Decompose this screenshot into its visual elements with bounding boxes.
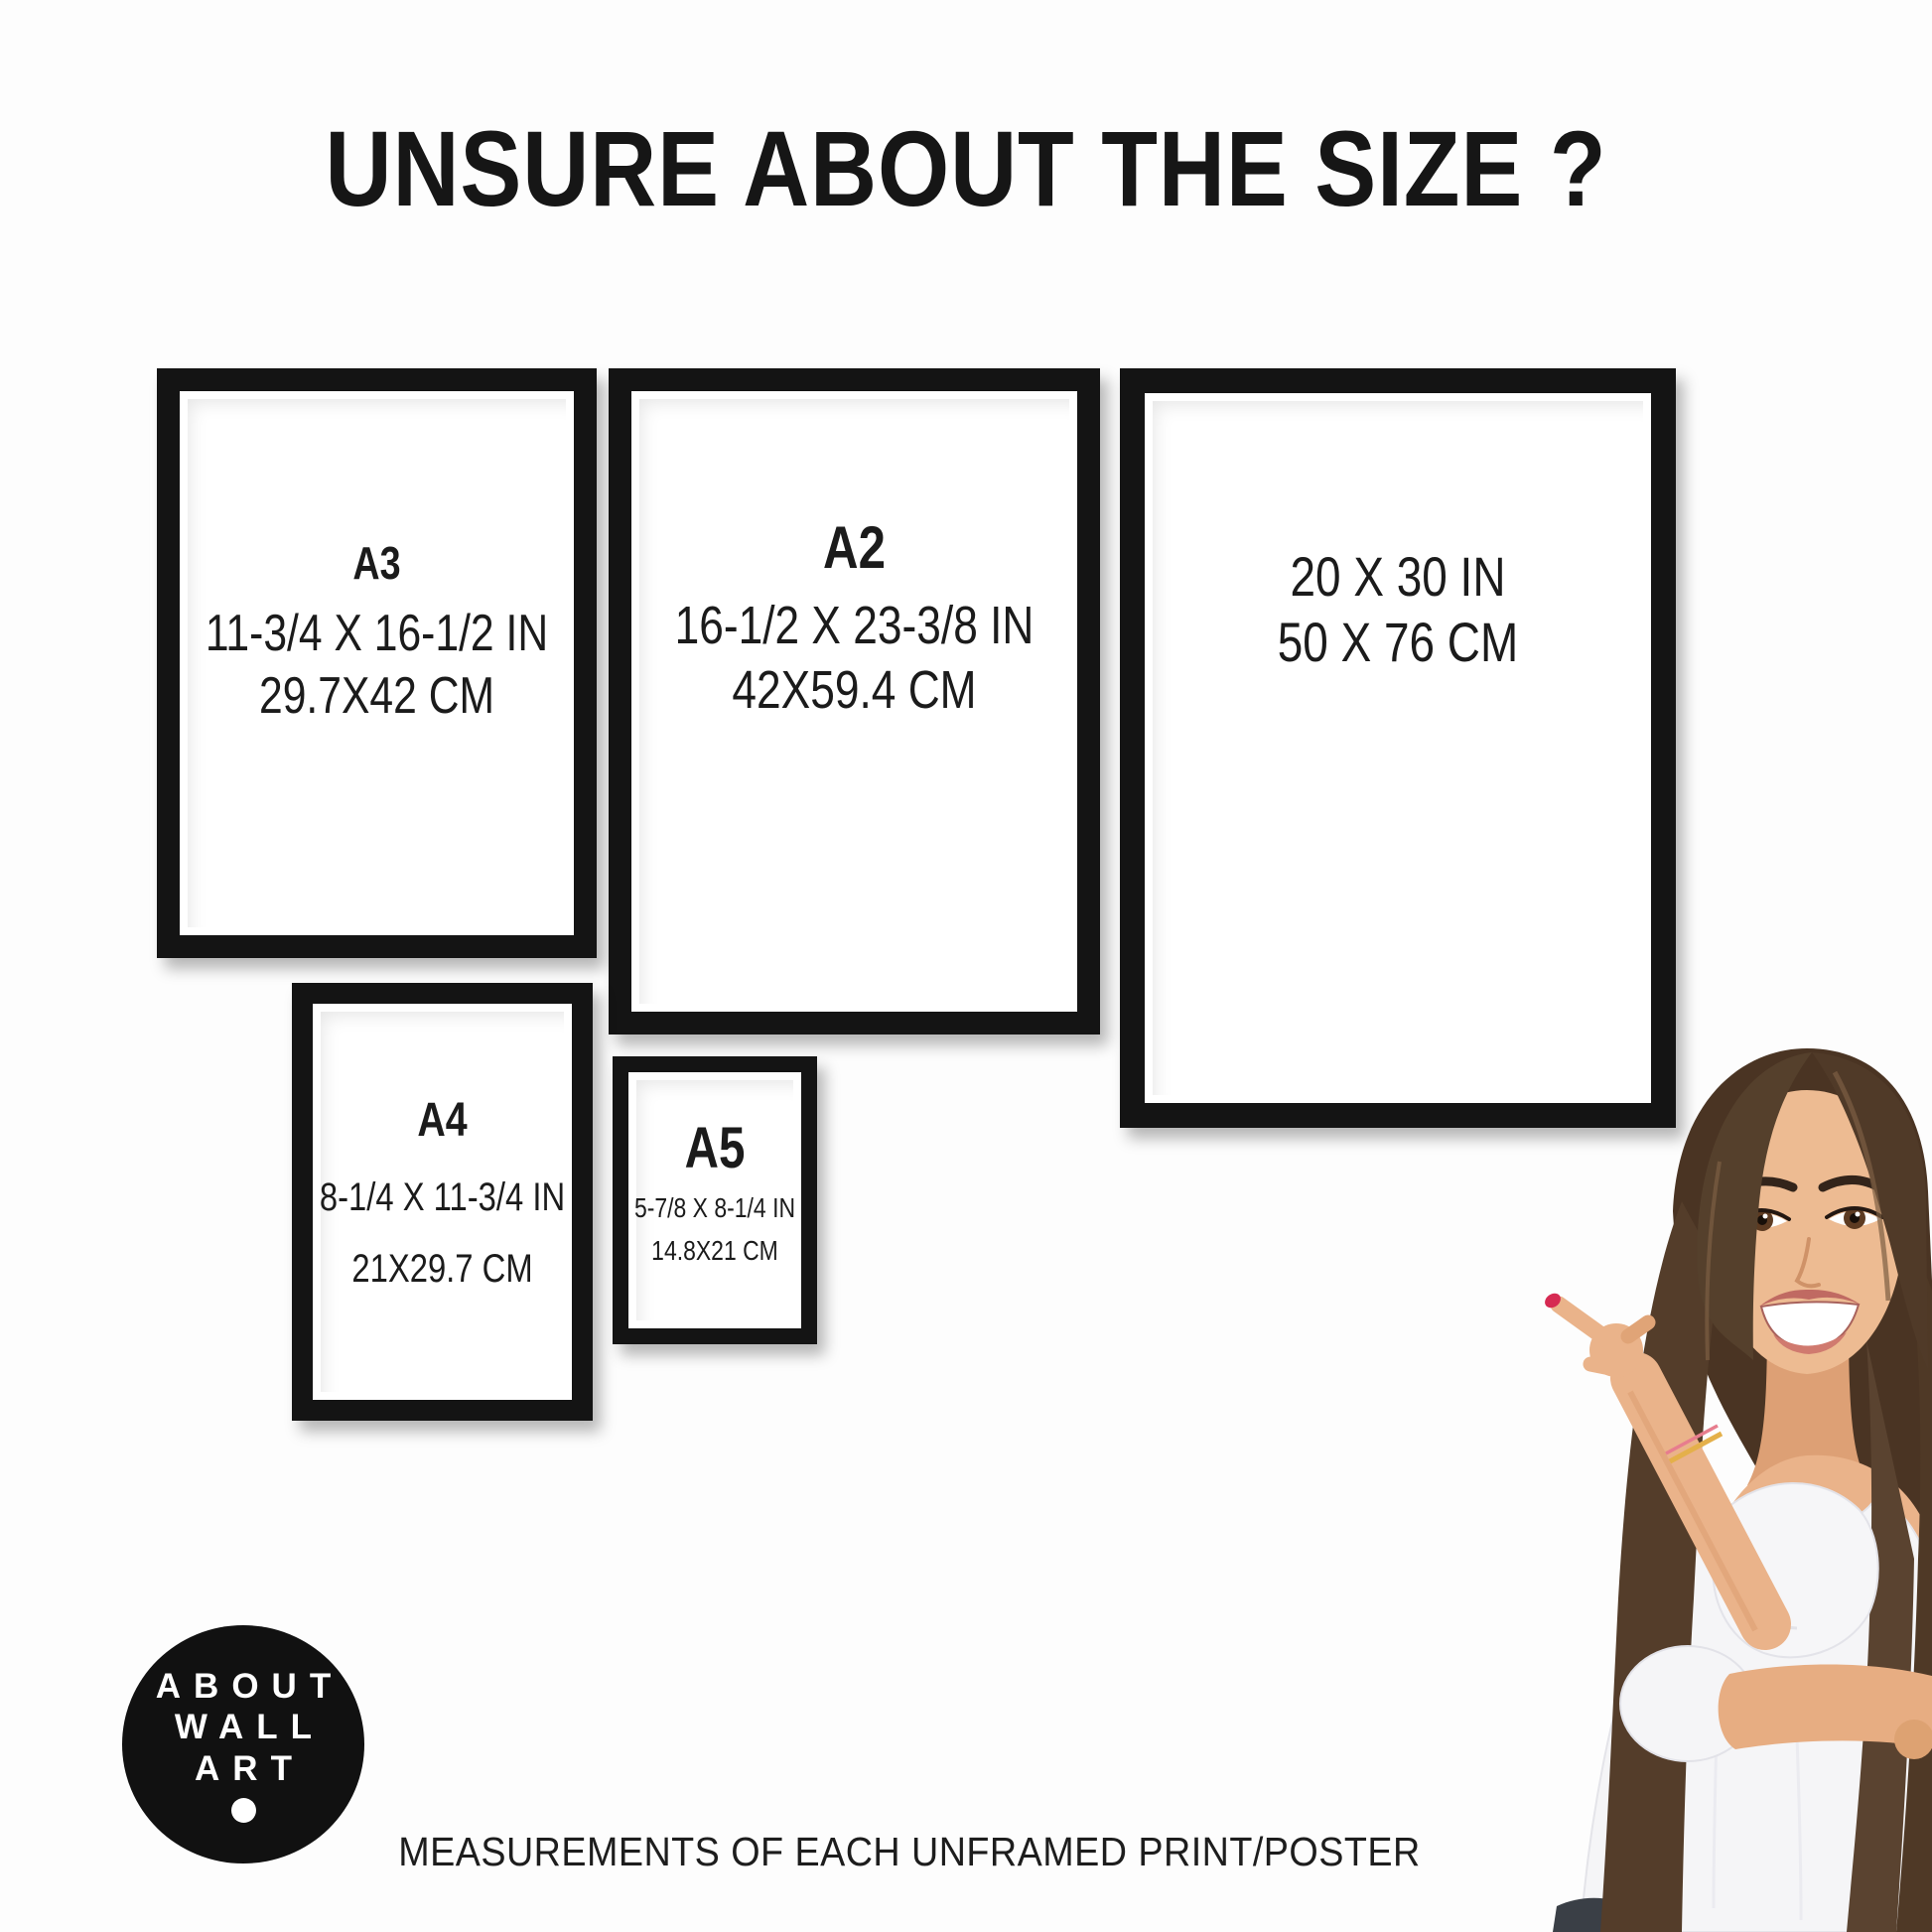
size-inches: 20 X 30 IN bbox=[1170, 544, 1625, 610]
size-frame-20x30 bbox=[1120, 368, 1676, 1128]
footer-caption: MEASUREMENTS OF EACH UNFRAMED PRINT/POST… bbox=[398, 1832, 1385, 1872]
logo-dot-icon bbox=[231, 1798, 256, 1823]
size-inches: 8-1/4 X 11-3/4 IN bbox=[319, 1173, 565, 1221]
woman-pointing-photo bbox=[1469, 1042, 1932, 1932]
size-text-a3: A3 11-3/4 X 16-1/2 IN 29.7X42 CM bbox=[197, 536, 557, 727]
size-label: A2 bbox=[653, 512, 1056, 584]
size-text-a4: A4 8-1/4 X 11-3/4 IN 21X29.7 CM bbox=[319, 1092, 565, 1293]
size-inches: 11-3/4 X 16-1/2 IN bbox=[197, 603, 557, 664]
size-cm: 29.7X42 CM bbox=[197, 665, 557, 727]
size-cm: 21X29.7 CM bbox=[319, 1245, 565, 1293]
size-label: A3 bbox=[197, 536, 557, 591]
size-text-20x30: 20 X 30 IN 50 X 76 CM bbox=[1170, 544, 1625, 675]
logo-text-line: ART bbox=[182, 1748, 305, 1789]
page-title: UNSURE ABOUT THE SIZE ? bbox=[135, 115, 1797, 222]
size-cm: 42X59.4 CM bbox=[653, 658, 1056, 723]
size-cm: 14.8X21 CM bbox=[631, 1234, 799, 1268]
about-wall-art-logo: ABOUT WALL ART bbox=[122, 1625, 364, 1863]
size-inches: 5-7/8 X 8-1/4 IN bbox=[631, 1191, 799, 1225]
woman-pointing-illustration bbox=[1469, 1042, 1932, 1932]
size-inches: 16-1/2 X 23-3/8 IN bbox=[653, 594, 1056, 658]
logo-text-line: WALL bbox=[162, 1707, 325, 1747]
size-text-a5: A5 5-7/8 X 8-1/4 IN 14.8X21 CM bbox=[631, 1114, 799, 1268]
size-label: A4 bbox=[319, 1092, 565, 1150]
logo-text-line: ABOUT bbox=[143, 1666, 344, 1707]
size-cm: 50 X 76 CM bbox=[1170, 610, 1625, 675]
size-text-a2: A2 16-1/2 X 23-3/8 IN 42X59.4 CM bbox=[653, 512, 1056, 723]
size-guide-poster: UNSURE ABOUT THE SIZE ? A3 11-3/4 X 16-1… bbox=[0, 0, 1932, 1932]
size-label: A5 bbox=[631, 1114, 799, 1183]
